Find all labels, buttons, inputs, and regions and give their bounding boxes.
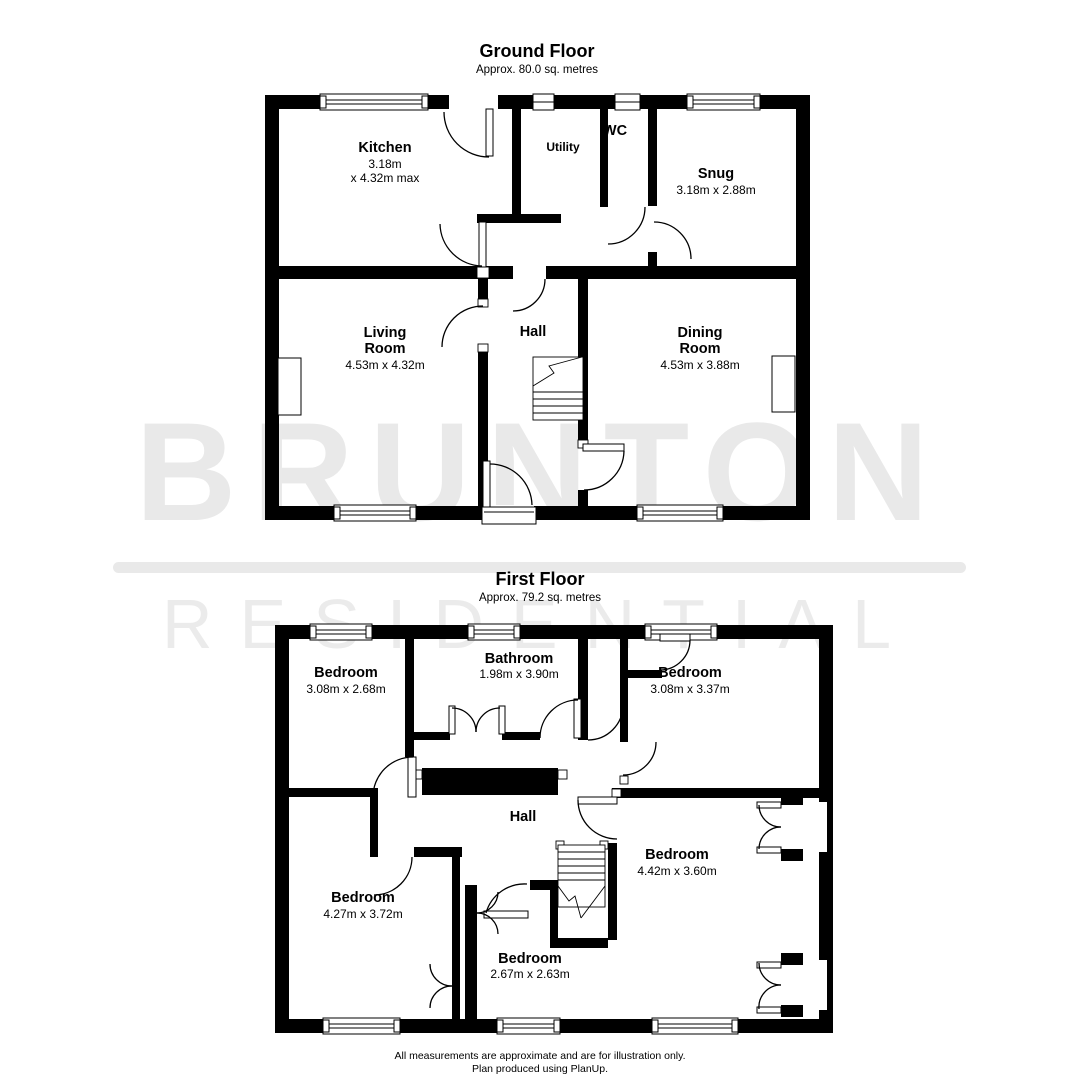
first-floor-plan: Bedroom 3.08m x 2.68m Bathroom 1.98m x 3… xyxy=(275,624,833,1034)
window-snug xyxy=(687,94,760,110)
window-bedroom-br xyxy=(652,1018,738,1034)
room-bedroom-tr-label: Bedroom xyxy=(658,665,722,681)
room-bedroom-tr: Bedroom 3.08m x 3.37m xyxy=(650,665,729,696)
window-bedroom-small xyxy=(497,1018,560,1034)
door-landing xyxy=(588,705,623,740)
first-floor-stairs xyxy=(558,845,605,918)
room-bedroom-tl: Bedroom 3.08m x 2.68m xyxy=(306,665,385,696)
window-kitchen xyxy=(320,94,428,110)
room-snug-label: Snug xyxy=(698,166,734,182)
door-dining-room xyxy=(583,444,624,490)
door-front-entrance xyxy=(483,461,532,507)
cupboard-bedroom-br-bottom xyxy=(757,962,781,1013)
ground-floor-plan: Kitchen 3.18m x 4.32m max Utility WC Snu… xyxy=(265,94,810,524)
window-bathroom xyxy=(468,624,520,640)
room-dining-label2: Room xyxy=(679,341,720,357)
room-living-dim1: 4.53m x 4.32m xyxy=(345,358,424,372)
room-hall-first-label: Hall xyxy=(510,809,537,825)
door-bathroom-entry xyxy=(540,699,581,738)
room-snug: Snug 3.18m x 2.88m xyxy=(676,166,755,197)
room-living: Living Room 4.53m x 4.32m xyxy=(345,325,424,372)
door-bedroom-small xyxy=(484,884,528,918)
room-bedroom-br: Bedroom 4.42m x 3.60m xyxy=(637,847,716,878)
door-kitchen-external xyxy=(444,109,493,157)
floorplan-page: BRUNTON RESIDENTIAL Ground Floor Approx.… xyxy=(0,0,1080,1080)
room-hall-first: Hall xyxy=(510,809,537,825)
window-bedroom-tl xyxy=(310,624,372,640)
room-kitchen-dim1: 3.18m xyxy=(368,157,401,171)
first-floor-title: First Floor Approx. 79.2 sq. metres xyxy=(479,569,601,604)
room-utility-label: Utility xyxy=(546,140,580,154)
room-bathroom-label: Bathroom xyxy=(485,651,553,667)
room-bathroom: Bathroom 1.98m x 3.90m xyxy=(479,651,558,681)
room-bedroom-tl-label: Bedroom xyxy=(314,665,378,681)
ground-floor-title: Ground Floor Approx. 80.0 sq. metres xyxy=(476,41,598,76)
door-hall-top xyxy=(513,279,545,311)
closet-bedroom-bl xyxy=(430,964,452,1008)
room-hall-ground-label: Hall xyxy=(520,324,547,340)
window-wc xyxy=(615,94,640,110)
door-living-room xyxy=(442,306,483,347)
room-utility: Utility xyxy=(546,140,580,154)
room-kitchen-dim2: x 4.32m max xyxy=(351,171,420,185)
chimney-breast-dining xyxy=(772,356,795,412)
room-bedroom-bl-dim1: 4.27m x 3.72m xyxy=(323,907,402,921)
window-dining xyxy=(637,505,723,521)
window-living xyxy=(334,505,416,521)
room-bedroom-br-label: Bedroom xyxy=(645,847,709,863)
room-kitchen-label: Kitchen xyxy=(358,140,411,156)
room-bedroom-tr-dim1: 3.08m x 3.37m xyxy=(650,682,729,696)
room-bedroom-bl: Bedroom 4.27m x 3.72m xyxy=(323,890,402,921)
room-bedroom-bl-label: Bedroom xyxy=(331,890,395,906)
room-dining-dim1: 4.53m x 3.88m xyxy=(660,358,739,372)
cupboard-bedroom-br-top xyxy=(757,802,781,853)
door-snug xyxy=(654,222,691,259)
ground-floor-walls xyxy=(265,95,810,520)
floorplan-drawing: Ground Floor Approx. 80.0 sq. metres Fir… xyxy=(0,0,1080,1080)
room-bedroom-tl-dim1: 3.08m x 2.68m xyxy=(306,682,385,696)
room-bedroom-br-dim1: 4.42m x 3.60m xyxy=(637,864,716,878)
footer-line1: All measurements are approximate and are… xyxy=(394,1050,685,1062)
room-dining-label1: Dining xyxy=(677,325,722,341)
window-utility xyxy=(533,94,554,110)
ground-floor-stairs xyxy=(533,357,583,420)
room-wc-label: WC xyxy=(603,123,628,139)
room-living-label1: Living xyxy=(364,325,407,341)
room-snug-dim1: 3.18m x 2.88m xyxy=(676,183,755,197)
door-bathroom-double xyxy=(449,706,505,734)
window-bedroom-bl xyxy=(323,1018,400,1034)
room-bedroom-small: Bedroom 2.67m x 2.63m xyxy=(490,951,569,981)
first-floor-area-text: Approx. 79.2 sq. metres xyxy=(479,592,601,604)
room-living-label2: Room xyxy=(364,341,405,357)
front-door-threshold xyxy=(482,505,536,524)
room-bathroom-dim1: 1.98m x 3.90m xyxy=(479,667,558,681)
footer-line2: Plan produced using PlanUp. xyxy=(472,1063,608,1075)
room-wc: WC xyxy=(603,123,628,139)
room-hall-ground: Hall xyxy=(520,324,547,340)
room-dining: Dining Room 4.53m x 3.88m xyxy=(660,325,739,372)
first-floor-title-text: First Floor xyxy=(496,569,585,589)
footer-disclaimer: All measurements are approximate and are… xyxy=(394,1050,685,1075)
ground-floor-area-text: Approx. 80.0 sq. metres xyxy=(476,64,598,76)
door-kitchen-lobby xyxy=(440,222,486,267)
door-bedroom-br xyxy=(578,797,617,839)
room-bedroom-small-dim1: 2.67m x 2.63m xyxy=(490,967,569,981)
door-wc xyxy=(608,207,645,244)
door-bedroom-tl xyxy=(373,757,416,797)
door-bedroom-tr xyxy=(623,742,656,775)
room-kitchen: Kitchen 3.18m x 4.32m max xyxy=(351,140,420,185)
chimney-breast-living xyxy=(278,358,301,415)
ground-floor-title-text: Ground Floor xyxy=(480,41,595,61)
room-bedroom-small-label: Bedroom xyxy=(498,951,562,967)
